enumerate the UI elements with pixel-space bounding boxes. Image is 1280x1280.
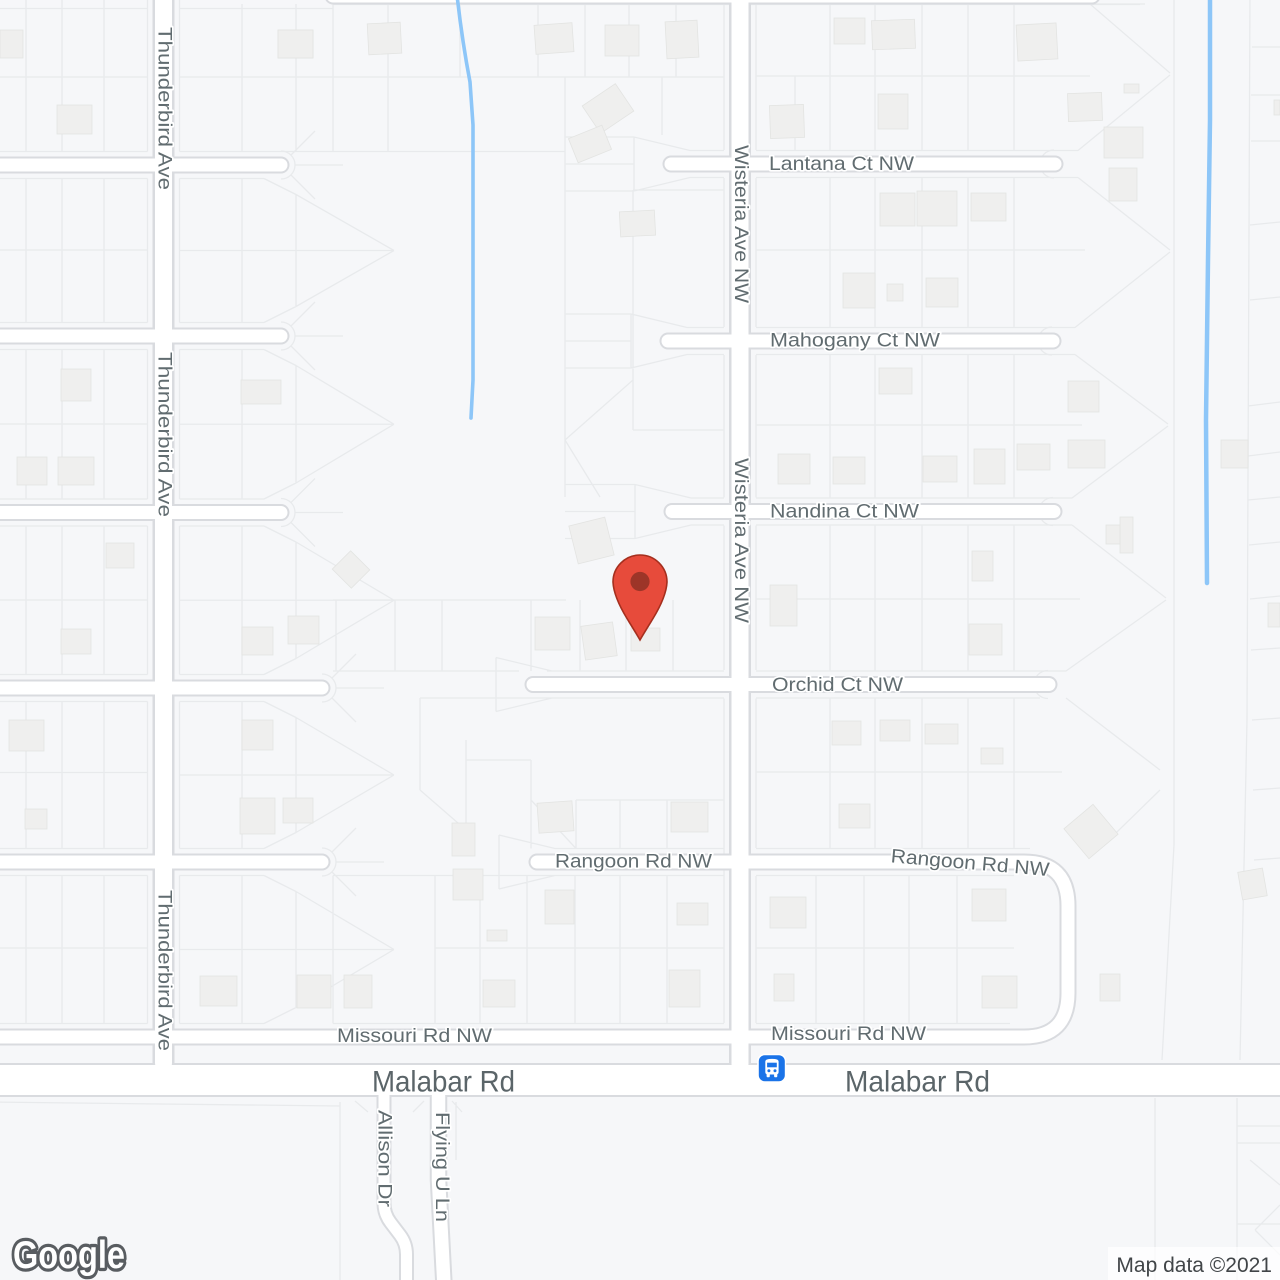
svg-text:Allison Dr: Allison Dr <box>373 1110 395 1208</box>
svg-text:Malabar Rd: Malabar Rd <box>372 1065 515 1098</box>
svg-text:Wisteria Ave NW: Wisteria Ave NW <box>730 145 752 304</box>
svg-text:Mahogany Ct NW: Mahogany Ct NW <box>770 330 941 352</box>
svg-text:Rangoon Rd NW: Rangoon Rd NW <box>555 851 713 873</box>
svg-text:Missouri Rd NW: Missouri Rd NW <box>771 1023 927 1045</box>
svg-text:Thunderbird Ave: Thunderbird Ave <box>153 352 175 517</box>
svg-text:Missouri Rd NW: Missouri Rd NW <box>337 1025 493 1047</box>
svg-text:Lantana Ct NW: Lantana Ct NW <box>769 153 915 175</box>
svg-text:Malabar Rd: Malabar Rd <box>845 1065 990 1098</box>
svg-text:Thunderbird Ave: Thunderbird Ave <box>153 27 175 190</box>
svg-text:Wisteria Ave NW: Wisteria Ave NW <box>730 458 752 624</box>
svg-text:Thunderbird Ave: Thunderbird Ave <box>153 890 175 1051</box>
svg-text:Orchid Ct NW: Orchid Ct NW <box>772 674 904 696</box>
svg-text:Map data ©2021: Map data ©2021 <box>1116 1254 1272 1277</box>
svg-text:Flying U Ln: Flying U Ln <box>431 1112 453 1222</box>
svg-text:Nandina Ct NW: Nandina Ct NW <box>770 501 920 523</box>
svg-text:Google: Google <box>13 1234 125 1277</box>
